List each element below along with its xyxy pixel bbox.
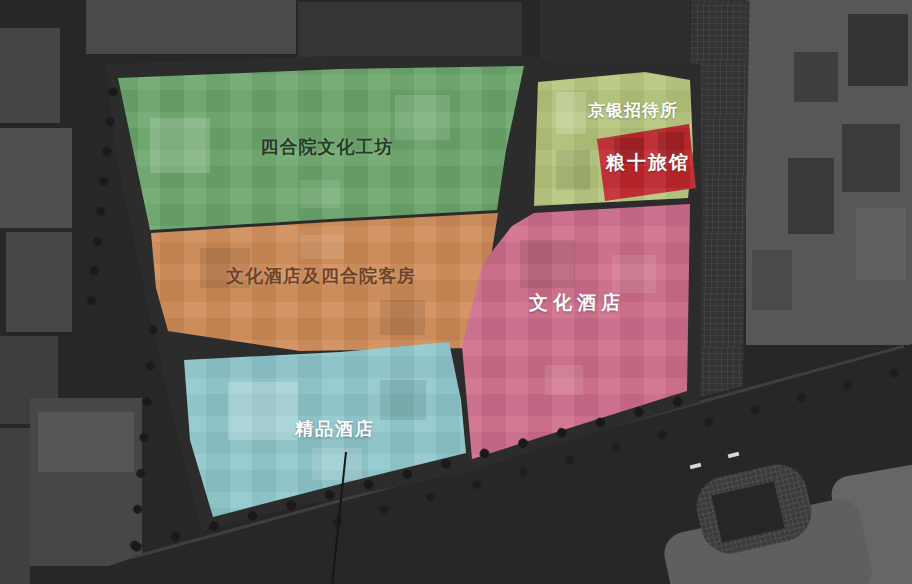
building-block [794, 52, 838, 102]
courtyard-building [395, 95, 450, 140]
courtyard-building [380, 300, 425, 335]
building-block [752, 250, 792, 310]
courtyard-building [150, 118, 210, 173]
building-block [0, 128, 72, 228]
zone-label-courtyard-culture-workshop: 四合院文化工坊 [261, 135, 394, 159]
building-block [540, 0, 690, 64]
courtyard-building [300, 235, 344, 259]
building-block [0, 428, 30, 584]
zone-label-liangshi-hostel: 粮十旅馆 [606, 150, 690, 176]
zone-label-culture-hotel: 文化酒店 [529, 290, 625, 316]
zone-label-boutique-hotel: 精品酒店 [295, 417, 375, 441]
courtyard-building [520, 240, 575, 288]
site-plan: 四合院文化工坊 京银招待所 粮十旅馆 文化酒店及四合院客房 文化酒店 精品酒店 [0, 0, 912, 584]
zone-label-culture-hotel-courtyard-guestrooms: 文化酒店及四合院客房 [226, 264, 416, 288]
courtyard-building [300, 180, 340, 208]
courtyard-building [312, 448, 362, 480]
building-block [298, 2, 522, 58]
building-roof [38, 412, 134, 472]
building-block [856, 208, 906, 280]
courtyard-building [556, 150, 590, 190]
building-block [788, 158, 834, 234]
courtyard-building [545, 365, 583, 395]
courtyard-building [380, 380, 426, 420]
building-block [848, 14, 908, 86]
courtyard-building [612, 255, 656, 293]
building-block [842, 124, 900, 192]
building-block [0, 28, 60, 123]
building-block [86, 0, 296, 54]
tree-row [83, 83, 122, 308]
zone-label-jingyin-guesthouse: 京银招待所 [588, 99, 678, 122]
building-block [6, 232, 72, 332]
courtyard-building [556, 92, 586, 134]
courtyard-building [228, 382, 298, 440]
